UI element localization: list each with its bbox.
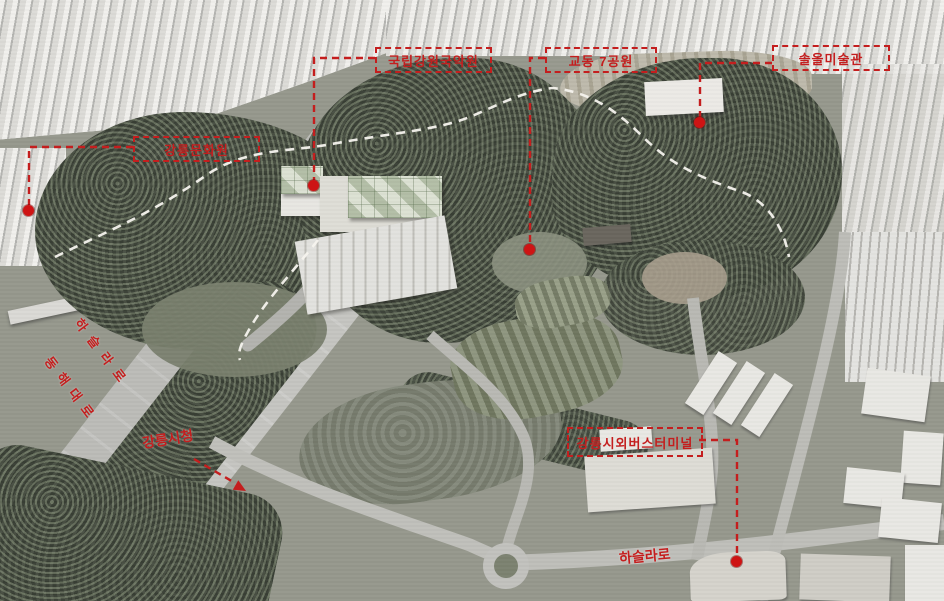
building [799,553,891,601]
callout-gyodong-park7: 교동 7공원 [545,47,657,73]
road-label-donghae-daero: 동해대로 [41,352,104,427]
callout-label: 교동 7공원 [569,51,634,70]
marker-dot-gyodong-park [524,244,535,255]
clearing-east [642,252,727,304]
callout-label: 국립강원국악원 [388,51,479,70]
proposed-building-hall-roof [348,176,442,218]
lawn-field-west [142,282,327,377]
museum-building [644,78,724,116]
building [861,368,931,422]
building [900,431,944,486]
city-blocks-right-edge [842,64,944,236]
marker-dot-sorol-museum [694,117,705,128]
callout-gangneung-cultural-center: 강릉문화원 [133,136,260,162]
building [878,497,942,543]
marker-dot-gugak-center [308,180,319,191]
marker-dot-bus-terminal [731,556,742,567]
callout-label: 강릉문화원 [164,140,229,159]
aerial-site-analysis-map: 국립강원국악원 교동 7공원 솔올미술관 강릉문화원 강릉시외버스터미널 하슬라… [0,0,944,601]
bus-terminal-building [584,448,716,513]
callout-label: 솔올미술관 [799,49,864,68]
callout-gangneung-bus-terminal: 강릉시외버스터미널 [567,427,703,457]
building [905,545,944,601]
callout-sorol-art-museum: 솔올미술관 [772,45,890,71]
callout-label: 강릉시외버스터미널 [577,433,694,452]
road-label-haslla-bottom: 하슬라로 [618,544,671,568]
industrial-area-right [845,232,944,382]
marker-dot-cultural-center [23,205,34,216]
roundabout-island [494,554,518,578]
callout-national-gugak-center: 국립강원국악원 [375,47,492,73]
